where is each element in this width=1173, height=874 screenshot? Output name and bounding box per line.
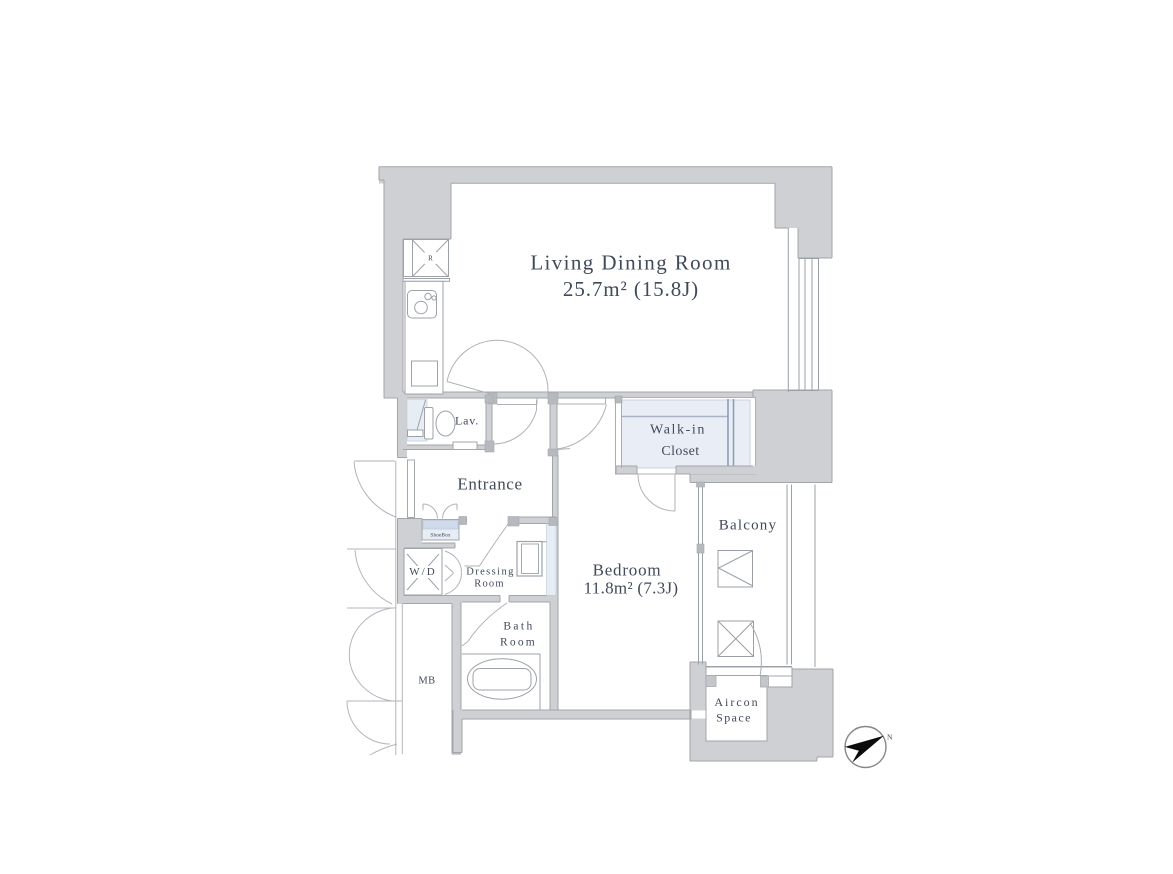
svg-text:Room: Room <box>474 579 504 590</box>
svg-text:MB: MB <box>418 676 435 687</box>
svg-text:Room: Room <box>500 637 537 649</box>
svg-text:ShoeBox: ShoeBox <box>430 533 450 539</box>
svg-text:Balcony: Balcony <box>719 518 777 534</box>
svg-text:Space: Space <box>716 711 752 725</box>
svg-text:Living Dining Room: Living Dining Room <box>530 251 731 275</box>
svg-text:Bedroom: Bedroom <box>593 561 662 580</box>
svg-text:25.7m² (15.8J): 25.7m² (15.8J) <box>563 277 699 301</box>
svg-text:Lav.: Lav. <box>455 414 479 428</box>
svg-text:Bath: Bath <box>503 621 534 633</box>
svg-text:Dressing: Dressing <box>466 567 515 578</box>
svg-text:Walk-in: Walk-in <box>650 423 706 438</box>
svg-text:Entrance: Entrance <box>457 475 522 494</box>
svg-text:N: N <box>887 733 893 742</box>
svg-text:11.8m² (7.3J): 11.8m² (7.3J) <box>584 579 679 598</box>
svg-text:R: R <box>428 255 433 263</box>
svg-text:Aircon: Aircon <box>714 695 759 709</box>
svg-text:W/D: W/D <box>409 566 436 578</box>
svg-text:Closet: Closet <box>661 444 699 459</box>
